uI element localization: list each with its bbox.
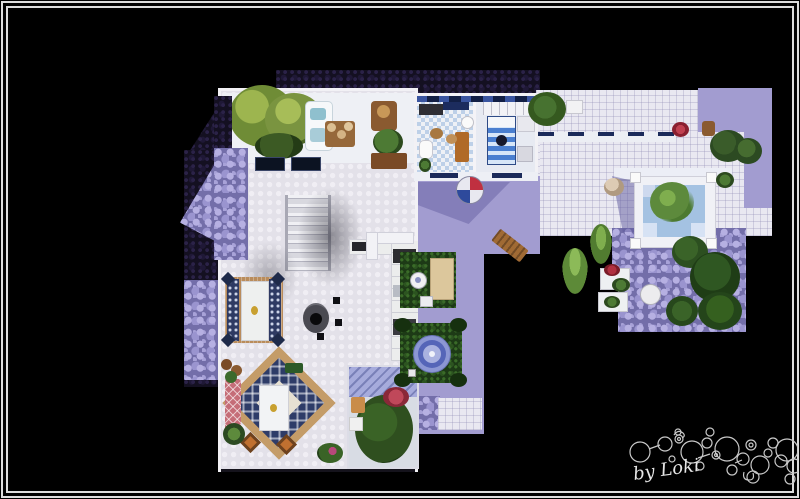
flower-bush-icon (383, 387, 409, 407)
shrub-icon (255, 133, 303, 159)
shrub-mass-icon (698, 292, 742, 330)
fire-pit-bowl (310, 313, 322, 325)
bush-icon (528, 92, 566, 126)
fire-pit (303, 303, 329, 333)
shrub-mass-icon (666, 296, 698, 326)
interior-wall (473, 102, 476, 176)
double-bed (487, 116, 516, 165)
tub-basin (310, 128, 326, 142)
screenshot-canvas: by Loki (0, 0, 800, 499)
banquet-table (241, 281, 269, 341)
planter-greens-icon (612, 278, 630, 292)
bowl-icon (337, 130, 346, 139)
garden-box (420, 296, 433, 307)
signature-text: by Loki (632, 455, 701, 485)
wall-window-row (538, 132, 676, 136)
skylight (255, 157, 285, 171)
clay-pot-icon (702, 121, 715, 136)
stucco-bottom-strip (438, 398, 482, 430)
house-bottom-shadow (221, 469, 415, 472)
garden-bench (285, 363, 303, 373)
bedroom-chair (517, 146, 533, 162)
stool (335, 319, 342, 326)
dark-tree-icon (734, 138, 762, 164)
garden-mat (430, 258, 454, 300)
pool-plant-island-icon (650, 182, 694, 222)
pool-column (630, 238, 641, 249)
counter-with-bowls (325, 121, 355, 147)
main-house (218, 88, 418, 472)
bed-pillows (488, 117, 515, 127)
red-flowers-icon (604, 264, 620, 276)
palm-plant-icon (590, 224, 612, 264)
round-fountain (413, 335, 451, 373)
basket-icon (446, 134, 457, 144)
window-icon (443, 102, 469, 110)
signature-flourish: by Loki (610, 402, 798, 494)
pool-column (630, 172, 641, 183)
garden-square-birdbath (400, 252, 456, 308)
stool (333, 297, 340, 304)
birdbath-water (415, 277, 421, 283)
beach-ball-rug (456, 176, 484, 204)
pool-step (643, 223, 657, 237)
candelabra-icon (251, 306, 258, 315)
wall-window-icon (492, 173, 522, 178)
tub-water (310, 108, 326, 120)
round-white-table (640, 284, 661, 305)
mirror-icon (377, 105, 390, 118)
palm-plant-icon (562, 248, 588, 294)
rug-panel (269, 279, 281, 341)
potted-plant-icon (373, 129, 403, 155)
cat-on-bed-icon (496, 135, 507, 146)
planter-greens-icon (604, 296, 620, 308)
chair-seat (280, 438, 293, 451)
void-cutout (484, 268, 618, 386)
pedestal-sink-icon (461, 116, 474, 129)
skylight (291, 157, 321, 171)
cobblestone-overlap-patch (214, 148, 248, 260)
red-flower-box-icon (672, 122, 689, 137)
hedge-ball-icon (450, 318, 467, 332)
chair-seat (244, 436, 257, 449)
bathroom-counter (419, 104, 443, 115)
fern-icon (223, 423, 245, 445)
bowl-icon (344, 122, 353, 131)
pool-step (691, 223, 705, 237)
night-overlap-patch (214, 96, 232, 148)
side-table (349, 417, 363, 431)
flourish-circle (630, 442, 650, 462)
toilet-icon (419, 140, 433, 159)
patio-table (259, 385, 289, 431)
plant-icon (419, 158, 431, 172)
table-centerpiece (270, 404, 277, 412)
hedge-ball-icon (394, 318, 411, 332)
fountain-jet-icon (429, 351, 435, 357)
wardrobe (483, 102, 531, 115)
dresser-with-mirror (371, 101, 397, 131)
garden-square-fountain (400, 323, 462, 383)
potted-plants-cluster (221, 359, 245, 387)
white-bench (566, 100, 583, 114)
wall-window-icon (430, 173, 458, 178)
dining-rug (225, 277, 283, 343)
stool (317, 333, 324, 340)
towel-cabinet (455, 132, 469, 162)
hedge-ball-icon (450, 373, 467, 387)
cobblestone-left-strip (184, 280, 218, 380)
planter-box (371, 153, 407, 169)
pool-column (706, 238, 717, 249)
soot-smudge (297, 187, 363, 287)
garden-box (408, 369, 416, 377)
plant-icon (225, 371, 237, 383)
planter-plant-icon (716, 172, 734, 188)
boulder-icon (604, 178, 624, 196)
bowl-icon (327, 123, 336, 132)
basket-icon (430, 128, 443, 139)
garden-wall-long (538, 132, 676, 142)
wood-chair (351, 397, 365, 413)
pergola-post (366, 232, 378, 260)
rug-panel (227, 279, 239, 341)
flowering-bush-icon (317, 443, 343, 463)
birdbath-icon (410, 272, 427, 289)
